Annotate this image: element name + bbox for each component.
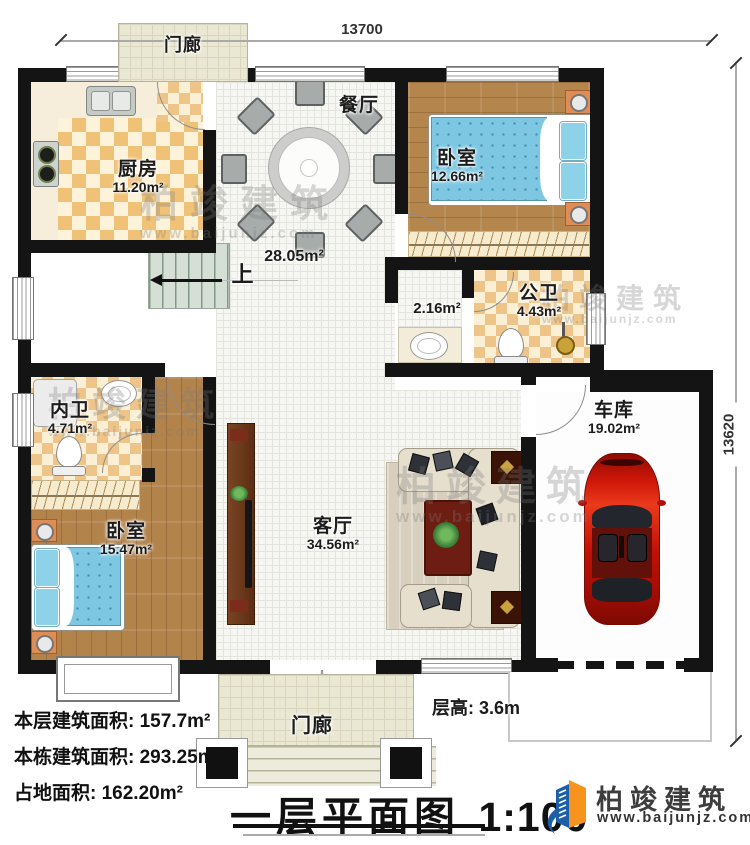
car-rear-window (592, 578, 652, 602)
sofa-pillow (442, 591, 462, 611)
logo-tower-orange (569, 780, 586, 828)
car-grill (600, 459, 644, 466)
car-seat (627, 534, 647, 562)
side-table (491, 591, 524, 624)
wall (590, 370, 713, 392)
stat-building-area: 本栋建筑面积: 293.25m² (14, 742, 264, 769)
bay-window (56, 656, 180, 702)
wall (462, 270, 474, 298)
dining-chair (221, 154, 247, 184)
plant (433, 522, 459, 548)
stat-floor-area: 本层建筑面积: 157.7m² (14, 706, 264, 733)
window (586, 293, 606, 345)
wall (363, 68, 448, 82)
shower-head (556, 336, 575, 355)
dimension-right-value: 13620 (721, 403, 740, 467)
title-underline (233, 824, 485, 828)
wall (142, 377, 155, 433)
room-name: 卧室 (85, 521, 167, 542)
room-name: 公卫 (504, 283, 574, 304)
plant-small (230, 486, 248, 501)
room-area: 19.02m² (576, 421, 652, 437)
bed-bottom-pillow (35, 588, 59, 626)
room-label-living: 客厅 34.56m² (293, 516, 373, 553)
stairs-up-label: 上 (228, 263, 258, 288)
cabinet-decor (230, 429, 248, 441)
dining-table-center (300, 159, 318, 177)
wall (699, 370, 713, 672)
room-name: 内卫 (36, 400, 104, 421)
room-label-passage: 2.16m² (402, 301, 472, 318)
room-area: 4.71m² (36, 421, 104, 437)
cabinet-decor (230, 600, 248, 612)
kitchen-sink (86, 86, 136, 116)
floor-plan: 13700 13620 柏竣建筑 www.baijunjz.com 柏竣建筑 w… (0, 0, 750, 845)
room-area: 12.66m² (420, 169, 494, 185)
wall (395, 82, 408, 214)
dining-chair (295, 80, 325, 106)
room-area: 15.47m² (85, 542, 167, 558)
stairs-arrow-line (162, 279, 222, 282)
side-table (491, 451, 524, 484)
room-name: 卧室 (420, 148, 494, 169)
room-area: 28.05m² (260, 248, 328, 266)
room-area: 2.16m² (402, 301, 472, 318)
room-label-kitchen: 厨房 11.20m² (94, 159, 182, 196)
floor-height-text: 层高: 3.6m (432, 698, 562, 718)
inner-bath-toilet (56, 436, 82, 468)
stove (33, 141, 59, 187)
dimension-top-value: 13700 (330, 21, 394, 40)
wall (18, 240, 216, 253)
room-label-bedroom-top: 卧室 12.66m² (420, 148, 494, 185)
room-name: 厨房 (94, 159, 182, 180)
room-area: 4.43m² (504, 304, 574, 320)
vanity-basin (410, 332, 448, 360)
room-name: 门廊 (279, 715, 345, 737)
nightstand (31, 519, 57, 542)
car (584, 453, 660, 625)
window (12, 277, 34, 340)
floor-height-label: 层高: 3.6m (432, 698, 562, 718)
sofa-pillow (432, 450, 453, 471)
car-mirror (657, 500, 666, 506)
window (421, 658, 512, 674)
wall (385, 257, 398, 303)
nightstand (565, 202, 591, 226)
wall (376, 660, 423, 674)
wall (203, 130, 216, 253)
stairs-arrow-head (150, 274, 162, 286)
sofa-pillow (476, 550, 497, 571)
car-mirror (578, 500, 587, 506)
nightstand (565, 90, 591, 114)
wall (521, 377, 536, 385)
room-label-inner-bath: 内卫 4.71m² (36, 400, 104, 437)
logo: 柏竣建筑 www.baijunjz.com (543, 776, 743, 840)
room-name: 门廊 (148, 35, 218, 55)
bed-bottom-pillow (35, 549, 59, 587)
column (390, 747, 422, 779)
window (12, 393, 34, 447)
wall (216, 660, 270, 674)
room-name: 餐厅 (328, 95, 390, 116)
car-seat (598, 534, 618, 562)
room-label-dining: 餐厅 (328, 95, 390, 116)
inner-bath-toilet-tank (52, 466, 86, 476)
room-label-garage: 车库 19.02m² (576, 400, 652, 437)
wall (684, 658, 713, 672)
room-label-public-bath: 公卫 4.43m² (504, 283, 574, 320)
area-stats: 本层建筑面积: 157.7m² 本栋建筑面积: 293.25m² 占地面积: 1… (14, 706, 264, 814)
bed-bottom-sheet (60, 547, 74, 626)
bed-top-pillow (560, 162, 586, 200)
inner-bath-basin (101, 380, 137, 407)
tv (245, 500, 252, 588)
garage-door-dashed (556, 661, 686, 669)
car-cockpit (592, 528, 652, 578)
wall (18, 363, 165, 377)
bed-top-pillow (560, 122, 586, 160)
logo-building-icon (543, 776, 591, 843)
bed-top-sheet (540, 117, 556, 201)
stat-footprint-area: 占地面积: 162.20m² (14, 778, 264, 805)
stairs-up-text: 上 (228, 263, 258, 288)
room-label-hall: 28.05m² (260, 248, 328, 266)
room-label-bedroom-bottom: 卧室 15.47m² (85, 521, 167, 558)
wall (385, 363, 604, 377)
room-name: 车库 (576, 400, 652, 421)
title-underline-thin (243, 834, 485, 836)
bedroom-bottom-wardrobe (31, 480, 140, 510)
room-name: 客厅 (293, 516, 373, 537)
wall (521, 437, 536, 672)
window (255, 66, 365, 82)
room-area: 11.20m² (94, 180, 182, 196)
window (446, 66, 559, 82)
logo-website: www.baijunjz.com (597, 810, 750, 826)
room-label-porch-bottom: 门廊 (279, 715, 345, 737)
wall (536, 658, 558, 672)
room-area: 34.56m² (293, 537, 373, 553)
wall (142, 468, 155, 482)
room-label-porch-top: 门廊 (148, 35, 218, 55)
nightstand (31, 631, 57, 654)
